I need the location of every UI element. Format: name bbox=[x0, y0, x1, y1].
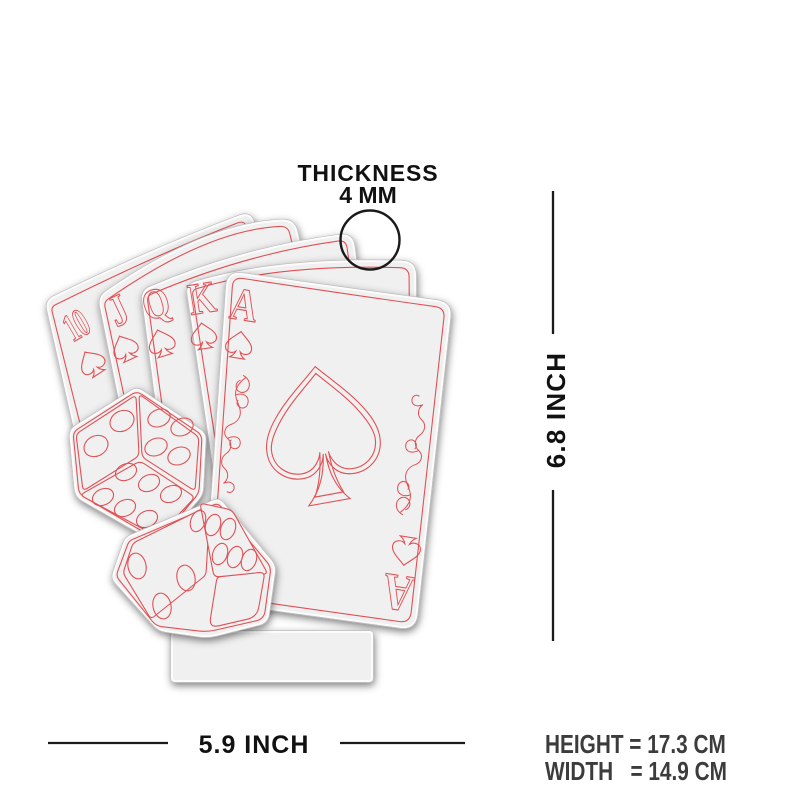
svg-text:4 MM: 4 MM bbox=[339, 182, 397, 208]
svg-text:WIDTH = 14.9 CM: WIDTH = 14.9 CM bbox=[545, 757, 727, 786]
svg-text:HEIGHT = 17.3 CM: HEIGHT = 17.3 CM bbox=[545, 730, 726, 759]
svg-text:6.8 INCH: 6.8 INCH bbox=[541, 352, 571, 469]
svg-text:5.9 INCH: 5.9 INCH bbox=[199, 731, 310, 759]
